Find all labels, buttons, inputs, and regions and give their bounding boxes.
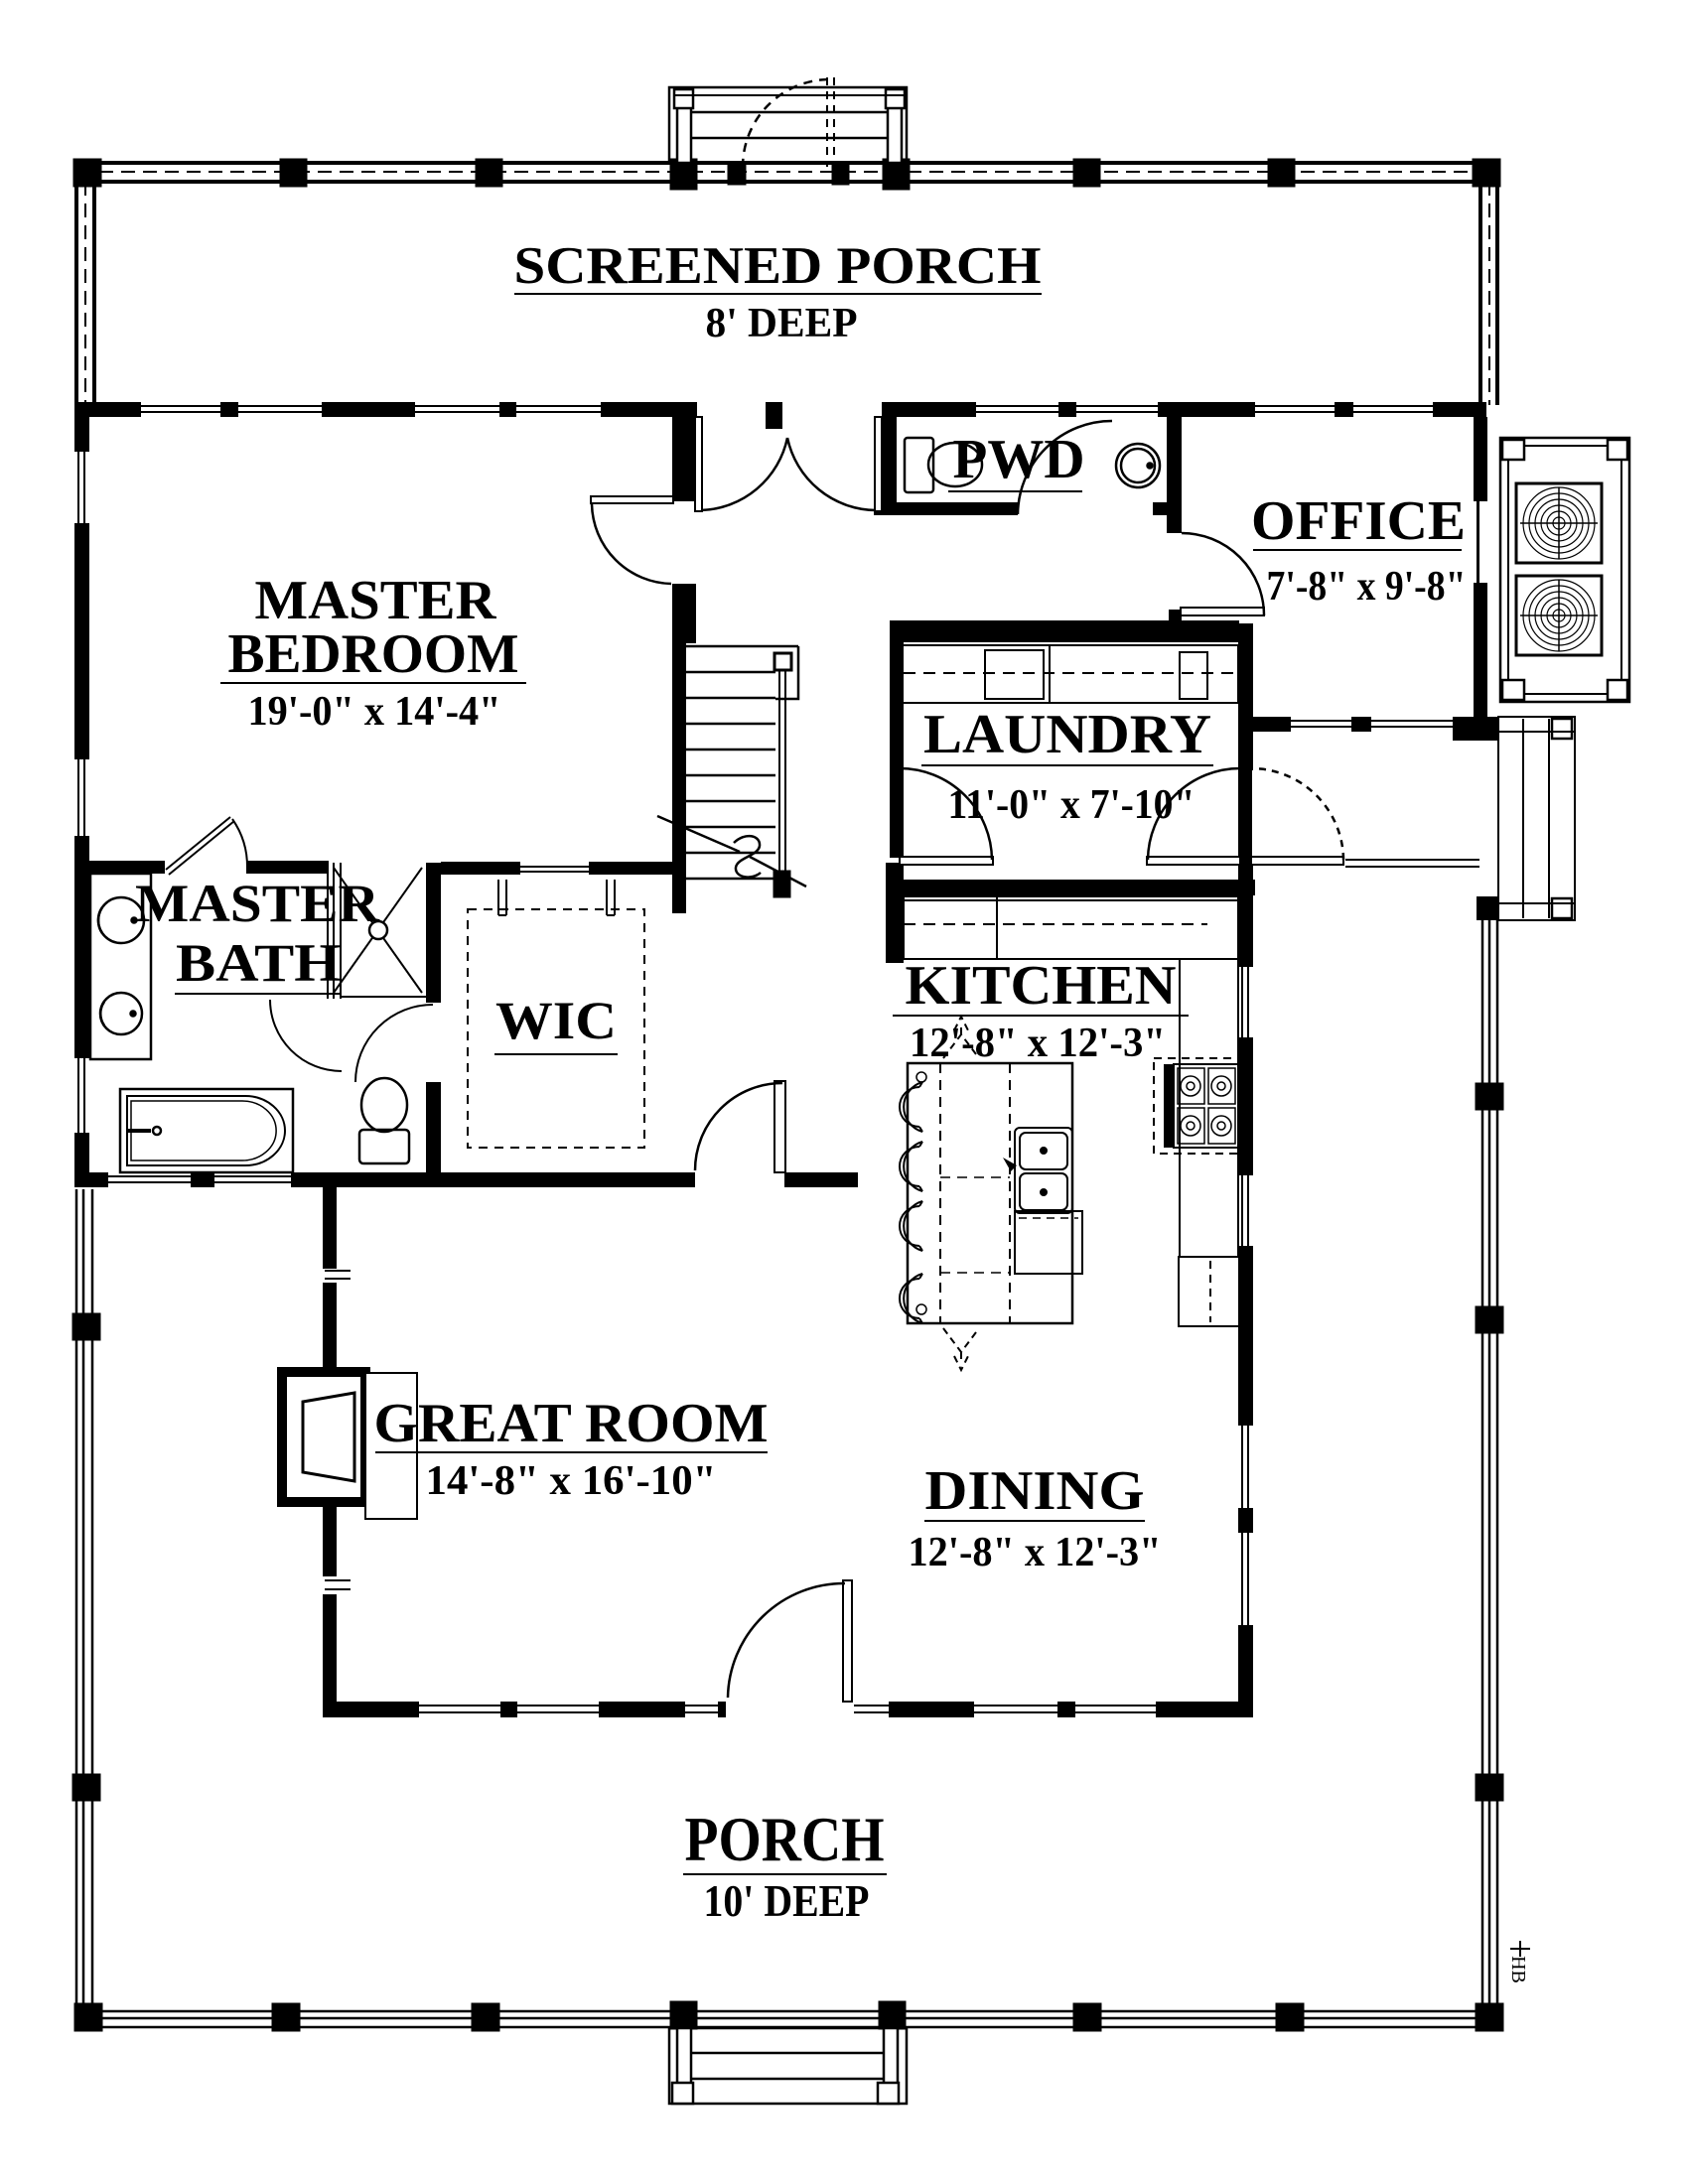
svg-text:OFFICE: OFFICE — [1251, 490, 1466, 552]
svg-text:11'-0" x 7'-10": 11'-0" x 7'-10" — [948, 782, 1196, 828]
svg-text:WIC: WIC — [495, 991, 617, 1050]
svg-text:HB: HB — [1507, 1956, 1529, 1983]
svg-text:MASTER: MASTER — [135, 874, 380, 933]
svg-text:MASTER: MASTER — [255, 570, 497, 631]
svg-text:PWD: PWD — [953, 429, 1085, 490]
svg-text:BATH: BATH — [176, 933, 341, 993]
svg-text:7'-8" x 9'-8": 7'-8" x 9'-8" — [1267, 564, 1467, 610]
svg-text:GREAT ROOM: GREAT ROOM — [374, 1393, 769, 1454]
svg-text:19'-0" x 14'-4": 19'-0" x 14'-4" — [248, 689, 501, 735]
svg-text:12'-8" x 12'-3": 12'-8" x 12'-3" — [909, 1530, 1162, 1575]
svg-text:BEDROOM: BEDROOM — [228, 623, 519, 685]
svg-text:KITCHEN: KITCHEN — [906, 955, 1177, 1017]
svg-text:DINING: DINING — [925, 1460, 1145, 1522]
svg-text:12'-8" x 12'-3": 12'-8" x 12'-3" — [910, 1021, 1166, 1066]
svg-text:14'-8" x 16'-10": 14'-8" x 16'-10" — [426, 1458, 717, 1504]
svg-text:8' DEEP: 8' DEEP — [706, 301, 858, 346]
svg-text:10' DEEP: 10' DEEP — [704, 1875, 870, 1926]
svg-text:SCREENED PORCH: SCREENED PORCH — [514, 237, 1042, 295]
svg-text:PORCH: PORCH — [685, 1804, 885, 1874]
svg-text:LAUNDRY: LAUNDRY — [923, 704, 1211, 765]
